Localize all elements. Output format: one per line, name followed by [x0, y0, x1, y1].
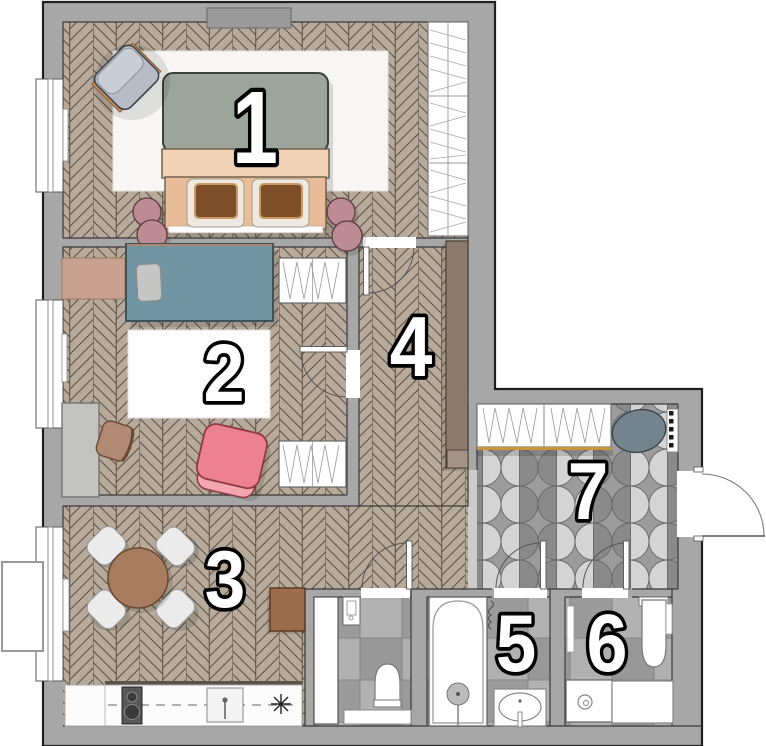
svg-text:5: 5	[496, 598, 537, 688]
svg-text:7: 7	[568, 446, 609, 536]
svg-text:3: 3	[205, 534, 246, 624]
svg-text:1: 1	[232, 70, 278, 185]
svg-text:4: 4	[390, 300, 433, 395]
svg-text:2: 2	[203, 326, 244, 419]
svg-text:6: 6	[586, 596, 627, 689]
